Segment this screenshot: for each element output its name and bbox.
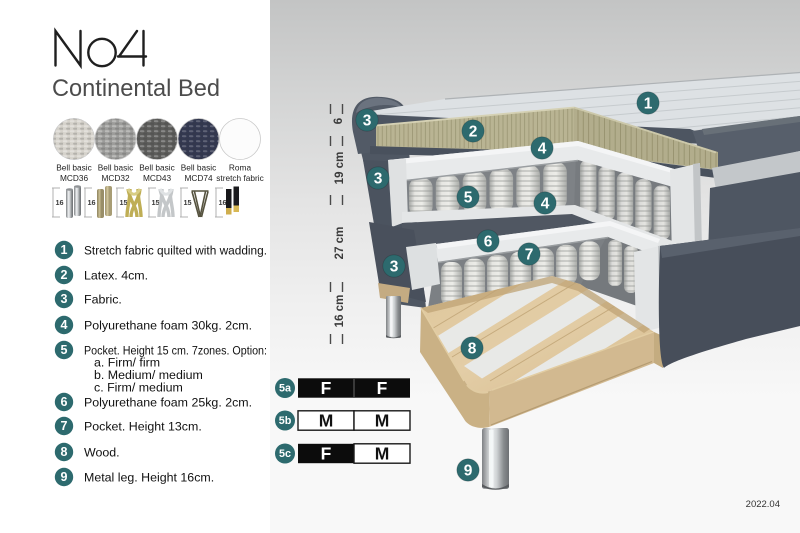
svg-text:3: 3 bbox=[390, 259, 399, 276]
svg-text:2022.04: 2022.04 bbox=[746, 499, 780, 510]
svg-text:Wood.: Wood. bbox=[84, 445, 120, 459]
svg-text:15: 15 bbox=[120, 198, 128, 207]
svg-text:Latex. 4cm.: Latex. 4cm. bbox=[84, 268, 148, 282]
svg-text:M: M bbox=[319, 411, 334, 431]
svg-text:4: 4 bbox=[541, 196, 550, 213]
svg-text:Roma: Roma bbox=[229, 163, 252, 173]
svg-text:F: F bbox=[321, 378, 332, 398]
svg-text:Pocket. Height 13cm.: Pocket. Height 13cm. bbox=[84, 419, 202, 433]
svg-text:5c: 5c bbox=[279, 448, 291, 460]
svg-text:6: 6 bbox=[61, 395, 68, 409]
svg-text:19 cm: 19 cm bbox=[334, 152, 346, 185]
svg-text:Polyurethane foam 30kg. 2cm.: Polyurethane foam 30kg. 2cm. bbox=[84, 318, 252, 332]
svg-text:MCD32: MCD32 bbox=[101, 173, 130, 183]
svg-text:3: 3 bbox=[374, 171, 383, 188]
svg-text:16: 16 bbox=[219, 198, 227, 207]
svg-text:27 cm: 27 cm bbox=[334, 227, 346, 260]
svg-text:Bell basic: Bell basic bbox=[98, 163, 134, 173]
svg-text:5: 5 bbox=[61, 343, 68, 357]
svg-text:6: 6 bbox=[333, 118, 345, 124]
svg-text:Metal leg. Height 16cm.: Metal leg. Height 16cm. bbox=[84, 470, 214, 484]
svg-text:2: 2 bbox=[61, 268, 68, 282]
svg-text:Continental Bed: Continental Bed bbox=[52, 75, 220, 102]
svg-text:1: 1 bbox=[644, 96, 653, 113]
svg-text:9: 9 bbox=[464, 463, 473, 480]
svg-text:Bell basic: Bell basic bbox=[181, 163, 217, 173]
svg-text:5: 5 bbox=[464, 190, 473, 207]
svg-text:5a: 5a bbox=[279, 382, 292, 394]
svg-text:4: 4 bbox=[61, 318, 68, 332]
svg-text:7: 7 bbox=[525, 247, 534, 264]
svg-text:15: 15 bbox=[184, 198, 192, 207]
svg-text:3: 3 bbox=[363, 113, 372, 130]
svg-text:9: 9 bbox=[61, 470, 68, 484]
svg-text:16: 16 bbox=[56, 198, 64, 207]
svg-text:MCD36: MCD36 bbox=[60, 173, 89, 183]
svg-text:16: 16 bbox=[88, 198, 96, 207]
svg-text:16 cm: 16 cm bbox=[334, 295, 346, 328]
svg-text:Bell basic: Bell basic bbox=[56, 163, 92, 173]
svg-text:8: 8 bbox=[468, 341, 477, 358]
svg-text:c. Firm/ medium: c. Firm/ medium bbox=[94, 381, 183, 395]
svg-text:7: 7 bbox=[61, 419, 68, 433]
svg-text:1: 1 bbox=[61, 243, 68, 257]
svg-text:3: 3 bbox=[61, 292, 68, 306]
svg-text:F: F bbox=[377, 378, 388, 398]
svg-text:M: M bbox=[375, 411, 390, 431]
svg-text:Fabric.: Fabric. bbox=[84, 292, 122, 306]
svg-text:MCD43: MCD43 bbox=[143, 173, 172, 183]
svg-text:4: 4 bbox=[538, 141, 547, 158]
svg-text:Stretch fabric quilted with wa: Stretch fabric quilted with wadding. bbox=[84, 243, 267, 257]
svg-text:5b: 5b bbox=[279, 415, 292, 427]
svg-text:F: F bbox=[321, 444, 332, 464]
svg-text:6: 6 bbox=[484, 234, 493, 251]
svg-text:8: 8 bbox=[61, 445, 68, 459]
svg-text:Polyurethane foam 25kg. 2cm.: Polyurethane foam 25kg. 2cm. bbox=[84, 395, 252, 409]
svg-text:stretch fabric: stretch fabric bbox=[216, 173, 264, 183]
svg-text:15: 15 bbox=[152, 198, 160, 207]
svg-text:Bell basic: Bell basic bbox=[139, 163, 175, 173]
svg-text:2: 2 bbox=[469, 124, 478, 141]
svg-text:M: M bbox=[375, 444, 390, 464]
svg-text:MCD74: MCD74 bbox=[184, 173, 213, 183]
